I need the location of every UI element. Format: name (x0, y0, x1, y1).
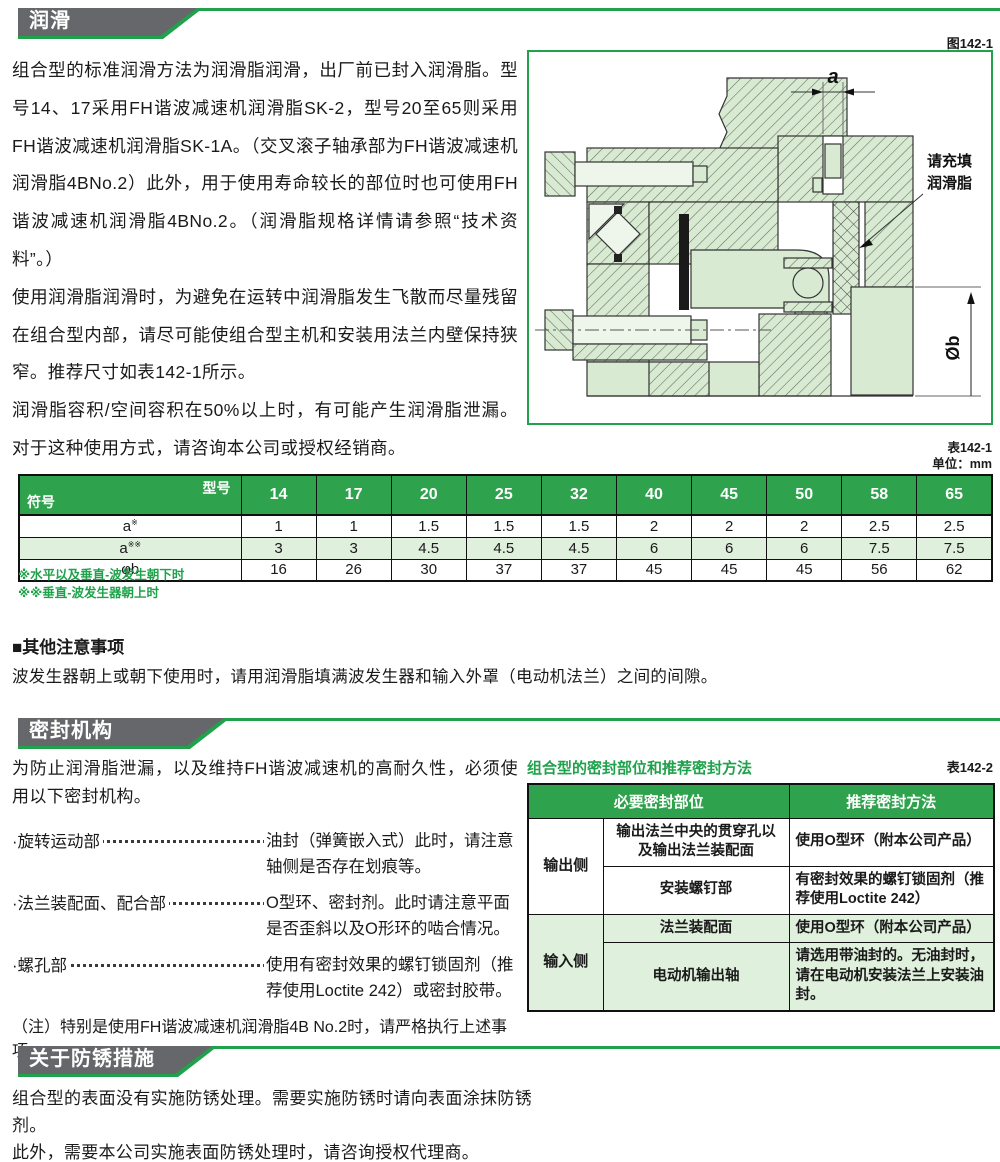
cell: 2 (692, 515, 767, 537)
corner-bottom-label: 符号 (27, 492, 55, 512)
col-header-method: 推荐密封方法 (789, 784, 994, 818)
cell: 4.5 (466, 537, 541, 559)
other-precautions-text: 波发生器朝上或朝下使用时，请用润滑脂填满波发生器和输入外罩（电动机法兰）之间的间… (12, 663, 972, 687)
part-cell: 电动机输出轴 (603, 943, 789, 1011)
method-cell: 请选用带油封的。无油封时，请在电动机安装法兰上安装油封。 (789, 943, 994, 1011)
sealing-items: ·旋转运动部 油封（弹簧嵌入式）此时，请注意轴侧是否存在划痕等。 ·法兰装配面、… (12, 828, 518, 1004)
table-row: 输出侧 输出法兰中央的贯穿孔以及输出法兰装配面 使用O型环（附本公司产品） (528, 818, 994, 866)
cell: 2.5 (842, 515, 917, 537)
section-tab: 润滑 (18, 8, 201, 36)
item-desc: 油封（弹簧嵌入式）此时，请注意轴侧是否存在划痕等。 (264, 828, 518, 881)
paragraph: 润滑脂容积/空间容积在50%以上时，有可能产生润滑脂泄漏。对于这种使用方式，请咨… (12, 392, 518, 468)
paragraph: 使用润滑脂润滑时，为避免在运转中润滑脂发生飞散而尽量残留在组合型内部，请尽可能使… (12, 279, 518, 392)
table2-title: 组合型的密封部位和推荐密封方法 (527, 757, 752, 778)
method-cell: 使用O型环（附本公司产品） (789, 818, 994, 866)
table1-caption: 表142-1 单位：mm (700, 441, 992, 472)
note: ※水平以及垂直-波发生朝下时 (18, 566, 184, 584)
col-header: 50 (767, 475, 842, 515)
table1-notes: ※水平以及垂直-波发生朝下时 ※※垂直-波发生器朝上时 (18, 566, 184, 602)
table-row-a2: a※※ 3 3 4.5 4.5 4.5 6 6 6 7.5 7.5 (19, 537, 992, 559)
cell: 4.5 (541, 537, 616, 559)
cross-section-diagram: a 请充填 润滑脂 Øb (529, 52, 991, 423)
col-header: 40 (616, 475, 691, 515)
corner-top-label: 型号 (203, 478, 231, 498)
item-label: ·法兰装配面、配合部 (12, 890, 169, 943)
dim-b-label: Øb (943, 335, 963, 360)
table-row: 输入侧 法兰装配面 使用O型环（附本公司产品） (528, 914, 994, 943)
table2-label: 表142-2 (947, 757, 993, 776)
cell: 1.5 (466, 515, 541, 537)
dimension-b: Øb (915, 287, 981, 396)
page: 润滑 组合型的标准润滑方法为润滑脂润滑，出厂前已封入润滑脂。型号14、17采用F… (0, 0, 1000, 1162)
row-symbol: a※ (19, 515, 241, 537)
cell: 56 (842, 559, 917, 581)
part-cell: 法兰装配面 (603, 914, 789, 943)
item-desc: O型环、密封剂。此时请注意平面是否歪斜以及O形环的啮合情况。 (264, 890, 518, 943)
lubrication-text: 组合型的标准润滑方法为润滑脂润滑，出厂前已封入润滑脂。型号14、17采用FH谐波… (12, 52, 518, 468)
cell: 37 (466, 559, 541, 581)
other-precautions: ■其他注意事项 波发生器朝上或朝下使用时，请用润滑脂填满波发生器和输入外罩（电动… (12, 633, 972, 687)
sealing-table: 必要密封部位 推荐密封方法 输出侧 输出法兰中央的贯穿孔以及输出法兰装配面 使用… (527, 783, 995, 1012)
table-header-row: 型号 符号 14 17 20 25 32 40 45 50 58 65 (19, 475, 992, 515)
cell: 37 (541, 559, 616, 581)
side-label-output: 输出侧 (528, 818, 603, 914)
col-header: 32 (541, 475, 616, 515)
method-cell: 使用O型环（附本公司产品） (789, 914, 994, 943)
cell: 3 (316, 537, 391, 559)
cell: 6 (767, 537, 842, 559)
list-item: ·螺孔部 使用有密封效果的螺钉锁固剂（推荐使用Loctite 242）或密封胶带… (12, 952, 518, 1005)
col-header: 45 (692, 475, 767, 515)
col-header: 25 (466, 475, 541, 515)
list-item: ·旋转运动部 油封（弹簧嵌入式）此时，请注意轴侧是否存在划痕等。 (12, 828, 518, 881)
cell: 7.5 (842, 537, 917, 559)
cell: 6 (692, 537, 767, 559)
cell: 26 (316, 559, 391, 581)
table1-unit: 单位：mm (700, 457, 992, 473)
paragraph: 组合型的标准润滑方法为润滑脂润滑，出厂前已封入润滑脂。型号14、17采用FH谐波… (12, 52, 518, 279)
section-title: 关于防锈措施 (29, 1048, 155, 1070)
table1-label: 表142-1 (700, 441, 992, 457)
cell: 62 (917, 559, 992, 581)
cell: 45 (692, 559, 767, 581)
dim-a-label: a (827, 66, 838, 88)
diagram-shapes (545, 78, 913, 396)
cell: 1.5 (391, 515, 466, 537)
row-symbol: a※※ (19, 537, 241, 559)
paragraph: 组合型的表面没有实施防锈处理。需要实施防锈时请向表面涂抹防锈剂。 (12, 1085, 532, 1139)
cell: 16 (241, 559, 316, 581)
list-item: ·法兰装配面、配合部 O型环、密封剂。此时请注意平面是否歪斜以及O形环的啮合情况… (12, 890, 518, 943)
item-label: ·螺孔部 (12, 952, 70, 1005)
note: ※※垂直-波发生器朝上时 (18, 584, 184, 602)
col-header: 58 (842, 475, 917, 515)
cell: 2.5 (917, 515, 992, 537)
cell: 3 (241, 537, 316, 559)
cell: 7.5 (917, 537, 992, 559)
col-header: 14 (241, 475, 316, 515)
col-header: 20 (391, 475, 466, 515)
table-header-row: 必要密封部位 推荐密封方法 (528, 784, 994, 818)
cell: 1.5 (541, 515, 616, 537)
figure-box: a 请充填 润滑脂 Øb (527, 50, 993, 425)
section-header-rust: 关于防锈措施 (18, 1043, 1000, 1077)
paragraph: 此外，需要本公司实施表面防锈处理时，请咨询授权代理商。 (12, 1139, 532, 1162)
col-header: 65 (917, 475, 992, 515)
cell: 2 (767, 515, 842, 537)
sealing-text: 为防止润滑脂泄漏，以及维持FH谐波减速机的高耐久性，必须使用以下密封机构。 ·旋… (12, 755, 518, 1061)
corner-cell: 型号 符号 (19, 475, 241, 515)
cell: 1 (316, 515, 391, 537)
other-precautions-title: ■其他注意事项 (12, 633, 972, 658)
cell: 2 (616, 515, 691, 537)
callout-line1: 请充填 (927, 152, 972, 170)
table2-caption: 组合型的密封部位和推荐密封方法 表142-2 (527, 757, 993, 778)
col-header: 17 (316, 475, 391, 515)
section-title: 密封机构 (29, 720, 113, 742)
side-label-input: 输入侧 (528, 914, 603, 1011)
rust-text: 组合型的表面没有实施防锈处理。需要实施防锈时请向表面涂抹防锈剂。 此外，需要本公… (12, 1085, 532, 1162)
callout-line2: 润滑脂 (927, 174, 972, 192)
cell: 45 (616, 559, 691, 581)
cell: 6 (616, 537, 691, 559)
item-desc: 使用有密封效果的螺钉锁固剂（推荐使用Loctite 242）或密封胶带。 (264, 952, 518, 1005)
cell: 45 (767, 559, 842, 581)
cell: 1 (241, 515, 316, 537)
part-cell: 输出法兰中央的贯穿孔以及输出法兰装配面 (603, 818, 789, 866)
cell: 4.5 (391, 537, 466, 559)
table-row-a1: a※ 1 1 1.5 1.5 1.5 2 2 2 2.5 2.5 (19, 515, 992, 537)
item-label: ·旋转运动部 (12, 828, 103, 881)
cell: 30 (391, 559, 466, 581)
col-header-part: 必要密封部位 (528, 784, 789, 818)
section-header-sealing: 密封机构 (18, 715, 1000, 749)
method-cell: 有密封效果的螺钉锁固剂（推荐使用Loctite 242） (789, 866, 994, 914)
sealing-intro: 为防止润滑脂泄漏，以及维持FH谐波减速机的高耐久性，必须使用以下密封机构。 (12, 755, 518, 810)
part-cell: 安装螺钉部 (603, 866, 789, 914)
section-title: 润滑 (29, 10, 71, 32)
